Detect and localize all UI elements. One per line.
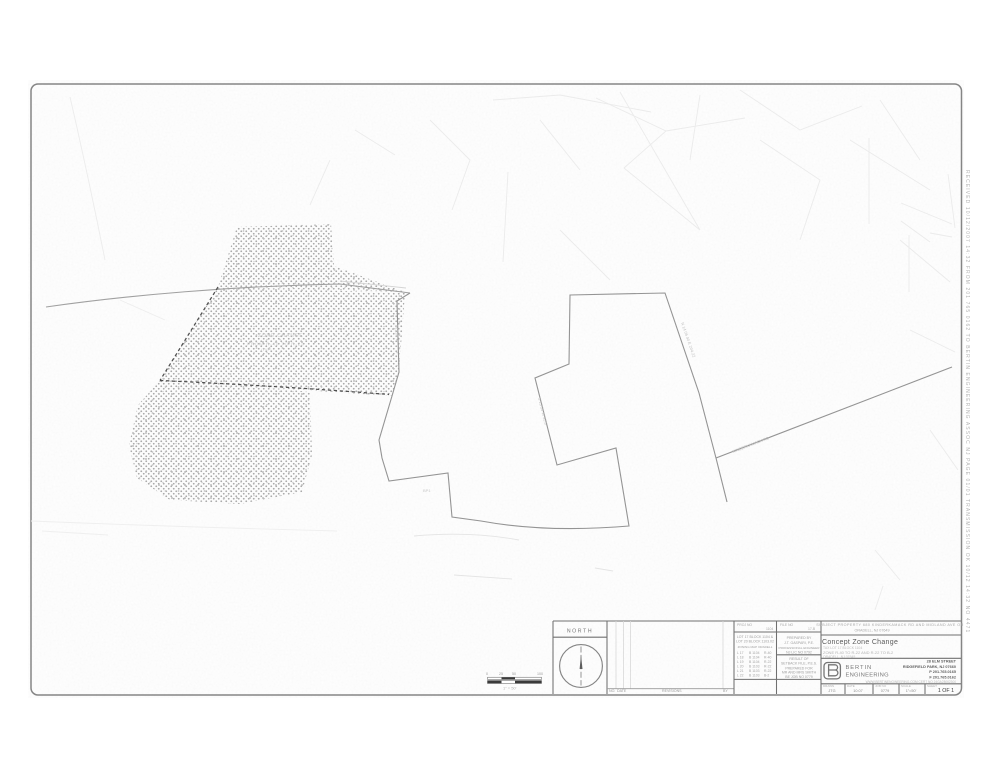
svg-text:(TYP): (TYP): [261, 347, 272, 352]
svg-text:R-40: R-40: [764, 651, 771, 655]
svg-text:FROM R-40 TO R-22: FROM R-40 TO R-22: [247, 342, 304, 348]
svg-text:NORTH: NORTH: [567, 629, 593, 635]
svg-text:17-B: 17-B: [808, 627, 816, 631]
svg-text:100: 100: [537, 672, 543, 676]
svg-text:JOB NO: JOB NO: [875, 684, 887, 688]
svg-text:B 1104: B 1104: [749, 656, 760, 660]
svg-text:1 OF 1: 1 OF 1: [938, 688, 954, 694]
svg-text:50: 50: [512, 672, 516, 676]
svg-text:B 1103: B 1103: [749, 665, 760, 669]
svg-text:DATE: DATE: [617, 689, 627, 693]
svg-text:NO.: NO.: [609, 689, 615, 693]
svg-text:ENGINEERING: ENGINEERING: [846, 672, 890, 678]
svg-text:Concept Zone Change: Concept Zone Change: [822, 639, 898, 646]
svg-text:P 201.765.0165: P 201.765.0165: [929, 670, 956, 674]
svg-text:SETBACK FILE, P.E.S.: SETBACK FILE, P.E.S.: [781, 662, 817, 666]
svg-text:1" = 50': 1" = 50': [503, 686, 517, 691]
svg-text:ORADELL, NJ 07649: ORADELL, NJ 07649: [823, 655, 855, 659]
svg-text:B 1104: B 1104: [749, 660, 760, 664]
svg-text:RECEIVED 10/12/2007 14:32 FROM: RECEIVED 10/12/2007 14:32 FROM 201 765 0…: [964, 170, 970, 633]
svg-text:10.07: 10.07: [853, 689, 863, 693]
svg-text:PREPARED BY: PREPARED BY: [787, 636, 812, 640]
svg-text:L 21: L 21: [737, 669, 744, 673]
svg-text:L 22: L 22: [737, 674, 744, 678]
svg-text:LOT 20 BLOCK 1103.02: LOT 20 BLOCK 1103.02: [736, 640, 774, 644]
svg-text:ZONING MAP ORADELL: ZONING MAP ORADELL: [738, 645, 773, 649]
svg-text:ZONE CHANGE: ZONE CHANGE: [258, 333, 303, 339]
svg-text:ORADELL, NJ 07649: ORADELL, NJ 07649: [854, 629, 889, 633]
svg-text:RIDGEFIELD PARK, NJ 07660: RIDGEFIELD PARK, NJ 07660: [903, 665, 956, 669]
svg-text:LOT 17 BLOCK 1104 &: LOT 17 BLOCK 1104 &: [737, 635, 774, 639]
svg-text:MR AND MRS SMITH: MR AND MRS SMITH: [782, 671, 817, 675]
svg-text:PROJ NO: PROJ NO: [737, 623, 752, 627]
svg-text:L 19: L 19: [737, 660, 744, 664]
svg-text:R-22: R-22: [764, 669, 771, 673]
svg-text:DATE: DATE: [847, 684, 855, 688]
svg-text:0: 0: [486, 672, 488, 676]
svg-text:FILE NO: FILE NO: [780, 623, 794, 627]
svg-text:28 ELM STREET: 28 ELM STREET: [927, 660, 957, 664]
svg-text:B 1104: B 1104: [749, 651, 760, 655]
svg-text:B 1103: B 1103: [749, 669, 760, 673]
svg-text:R-40: R-40: [764, 656, 771, 660]
svg-text:BERTIN: BERTIN: [846, 665, 873, 671]
svg-text:BY: BY: [723, 689, 728, 693]
svg-text:142.65: 142.65: [394, 325, 400, 338]
svg-text:SUBJECT PROPERTY 680 KINDERKAM: SUBJECT PROPERTY 680 KINDERKAMACK RD AND…: [816, 623, 963, 627]
svg-text:BE JOB NO 0779: BE JOB NO 0779: [785, 675, 812, 679]
svg-text:1104: 1104: [766, 627, 773, 631]
svg-text:25: 25: [499, 672, 503, 676]
svg-text:B-2: B-2: [764, 674, 769, 678]
svg-text:DRAWN: DRAWN: [823, 684, 834, 688]
svg-text:J.T. GASPARI, P.E.: J.T. GASPARI, P.E.: [784, 641, 814, 645]
svg-text:L 17: L 17: [737, 651, 744, 655]
svg-text:0779: 0779: [881, 689, 889, 693]
svg-text:JTG: JTG: [828, 689, 835, 693]
svg-text:REVISIONS: REVISIONS: [662, 689, 682, 693]
svg-text:B 1103: B 1103: [749, 674, 760, 678]
svg-text:SCALE: SCALE: [901, 684, 911, 688]
svg-text:R-22: R-22: [764, 660, 771, 664]
svg-text:1"=50': 1"=50': [906, 689, 917, 693]
svg-text:PROFESSIONAL ENGINEER: PROFESSIONAL ENGINEER: [779, 646, 821, 650]
svg-text:R-22: R-22: [764, 665, 771, 669]
svg-text:NJ LIC NO 0792: NJ LIC NO 0792: [786, 651, 812, 655]
svg-text:SHEET: SHEET: [927, 684, 937, 688]
svg-text:BP1: BP1: [423, 488, 431, 493]
svg-text:L 18: L 18: [737, 656, 744, 660]
svg-text:L 20: L 20: [737, 665, 744, 669]
svg-text:F 201.765.0162: F 201.765.0162: [929, 675, 956, 679]
svg-text:RESULT OF: RESULT OF: [789, 657, 808, 661]
